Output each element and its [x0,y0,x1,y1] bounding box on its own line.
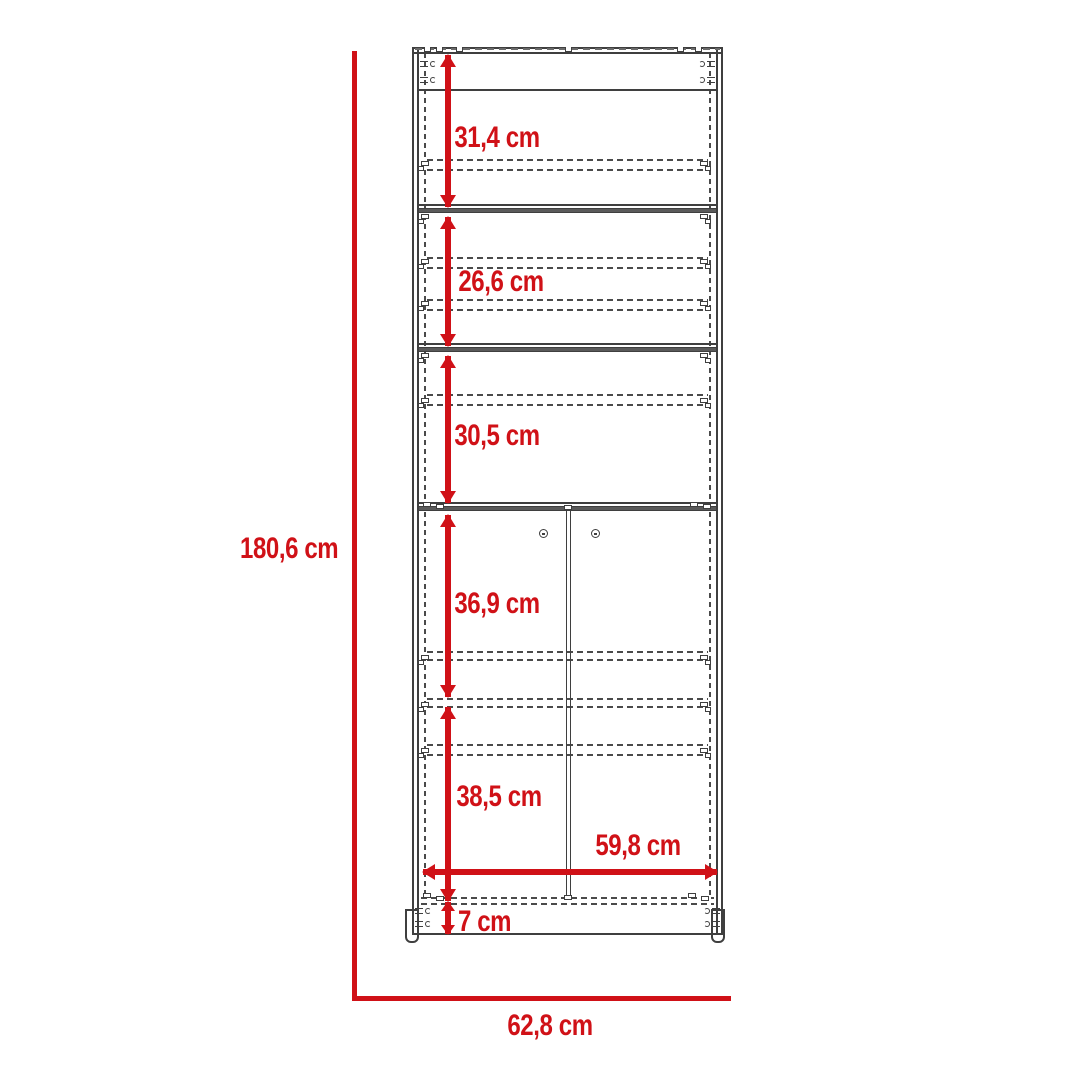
dimension-label-third-shelf: 30,5 cm [449,420,545,452]
top-panel-underside-line [419,89,716,91]
joint-mark-icon [564,895,572,900]
cam-lock-icon [698,76,715,85]
cam-lock-icon [415,907,432,916]
shelf-pin-icon [418,748,430,758]
mid-divider-line [419,502,716,504]
shelf-pin-icon [699,655,711,665]
shelf-pin-icon [418,353,430,363]
adjustable-shelf-position-line [427,394,708,396]
assembly-mark-icon [695,47,702,52]
dimension-label-second-shelf: 26,6 cm [453,266,549,298]
cam-lock-icon [420,60,437,69]
interior-width-dimension-arrow [423,869,717,875]
shelf-pin-icon [699,353,711,363]
cam-lock-icon [420,76,437,85]
dimension-arrow-base [445,902,451,934]
adjustable-shelf-position-line [427,404,708,406]
joint-mark-icon [423,893,431,898]
dimension-arrow-second-shelf [445,217,451,346]
top-panel-edge [412,52,723,54]
assembly-mark-icon [436,47,443,52]
assembly-mark-icon [677,47,684,52]
door-knob-icon [539,529,548,538]
fixed-shelf-line [419,204,716,206]
fixed-shelf [419,347,716,352]
joint-mark-icon [423,502,431,507]
overall-width-dimension-line [352,996,731,1001]
overall-height-dimension-line [352,51,357,1001]
side-panel-line-left [417,47,419,935]
cam-lock-icon [415,920,432,929]
shelf-pin-icon [699,702,711,712]
shelf-pin-icon [699,214,711,224]
adjustable-shelf-position-line [427,159,708,161]
shelf-pin-icon [699,398,711,408]
dimension-label-base-height: 7 cm [458,906,511,938]
shelf-pin-icon [699,301,711,311]
assembly-mark-icon [565,47,572,52]
adjustable-shelf-position-line [427,299,708,301]
dimension-label-door-lower: 38,5 cm [451,781,547,813]
shelf-pin-icon [418,214,430,224]
shelf-pin-icon [418,301,430,311]
shelf-pin-icon [418,702,430,712]
cam-lock-icon [703,907,720,916]
side-panel-hidden-edge-left [424,53,426,898]
shelf-pin-icon [699,259,711,269]
joint-mark-icon [690,502,698,507]
dimension-label-door-upper: 36,9 cm [449,588,545,620]
dimension-label-interior-width: 59,8 cm [590,830,686,862]
shelf-pin-icon [699,748,711,758]
joint-mark-icon [703,504,711,509]
dimension-diagram: 31,4 cm 26,6 cm 30,5 cm 36,9 cm 38,5 cm … [0,0,1090,1090]
door-knob-icon [591,529,600,538]
adjustable-shelf-position-line [427,169,708,171]
shelf-pin-icon [699,161,711,171]
shelf-pin-icon [418,398,430,408]
joint-mark-icon [701,896,709,901]
shelf-pin-icon [418,259,430,269]
door-gap-line [566,511,571,898]
shelf-pin-icon [418,161,430,171]
dimension-label-overall-height: 180,6 cm [240,533,336,565]
cam-lock-icon [698,60,715,69]
shelf-pin-icon [418,655,430,665]
assembly-mark-icon [456,47,463,52]
joint-mark-icon [688,893,696,898]
adjustable-shelf-position-line [427,309,708,311]
adjustable-shelf-position-line [427,257,708,259]
side-panel-hidden-edge-right [709,53,711,898]
dimension-label-overall-width: 62,8 cm [502,1010,598,1042]
side-panel-line-right [716,47,718,935]
cam-lock-icon [703,920,720,929]
assembly-mark-icon [424,47,431,52]
fixed-shelf [419,208,716,213]
fixed-shelf-line [419,343,716,345]
dimension-label-upper-shelf: 31,4 cm [449,122,545,154]
joint-mark-icon [564,505,572,510]
joint-mark-icon [436,504,444,509]
